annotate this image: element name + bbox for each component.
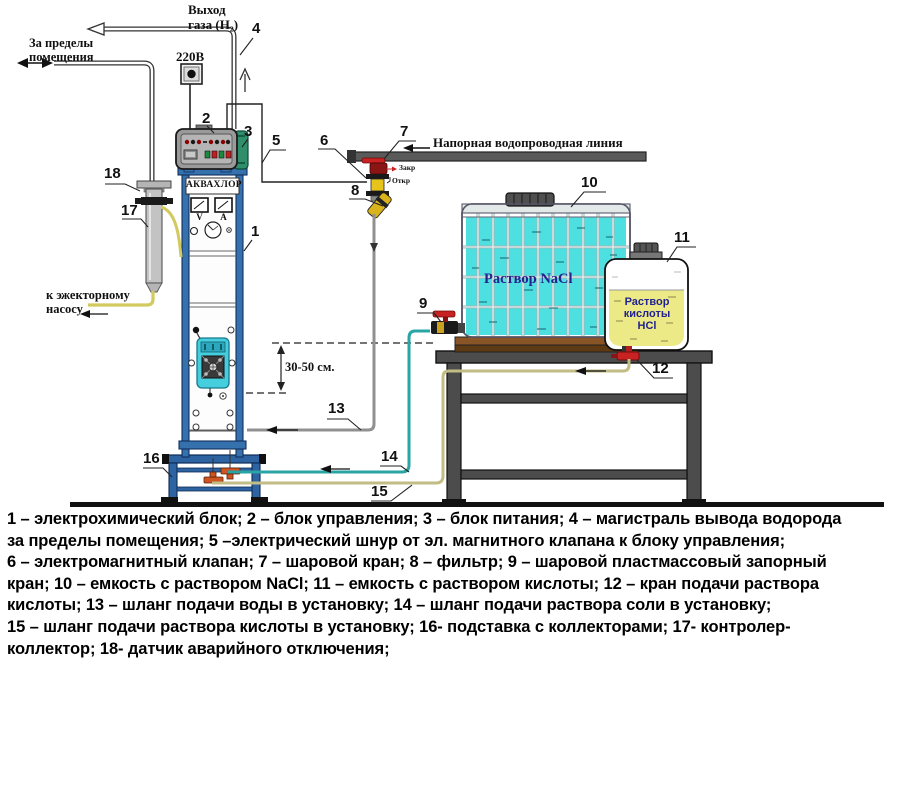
ejector-line1: к эжекторному	[46, 288, 130, 302]
outside-line1: За пределы	[29, 36, 93, 50]
collector-stand	[161, 450, 268, 505]
label-distance: 30-50 см.	[285, 360, 334, 374]
voltmeter	[191, 198, 208, 212]
acid-line2: кислоты	[624, 308, 670, 320]
safety-sensor-clamp	[135, 197, 173, 205]
callout-2: 2	[202, 111, 210, 126]
ammeter	[215, 198, 232, 212]
label-outside-room: За пределы помещения	[29, 36, 94, 65]
callout-3: 3	[244, 124, 252, 139]
h2-flow-arrow-icon	[88, 23, 104, 35]
outside-line2: помещения	[29, 50, 94, 64]
label-nacl-solution: Раствор NaCl	[484, 271, 573, 288]
water-flow-arrow-icon	[403, 144, 430, 152]
solenoid-body	[371, 179, 384, 191]
aquachlor-unit	[178, 168, 247, 457]
table	[436, 351, 712, 507]
callout-1: 1	[251, 224, 259, 239]
acid-hose-15	[212, 359, 629, 483]
cable-terminal	[193, 327, 199, 333]
callout-14: 14	[381, 449, 398, 464]
legend-line-6: 15 – шланг подачи раствора кислоты в уст…	[7, 617, 906, 639]
callout-9: 9	[419, 296, 427, 311]
valve-assembly	[362, 158, 397, 220]
ball-valve-body	[370, 163, 387, 174]
gauge-icon	[205, 222, 221, 238]
gas-outlet-line1: Выход	[188, 2, 226, 17]
callout-17: 17	[121, 203, 138, 218]
legend-line-2: за пределы помещения; 5 –электрический ш…	[7, 531, 906, 553]
label-valve-open: Откр	[392, 177, 410, 186]
safety-sensor-flange	[137, 181, 171, 188]
label-aquachlor: АКВАХЛОР	[186, 180, 239, 191]
pump-module	[197, 338, 229, 388]
plastic-ball-valve-9	[431, 311, 465, 334]
down-arrow-icon	[370, 243, 378, 252]
water-hose-13	[247, 214, 378, 434]
label-water-line: Напорная водопроводная линия	[433, 136, 623, 151]
callout-5: 5	[272, 133, 280, 148]
indicator-lamp	[191, 228, 198, 235]
schematic-drawing	[0, 0, 908, 510]
label-acid-solution: Раствор кислоты HCl	[618, 296, 676, 332]
callout-13: 13	[328, 401, 345, 416]
label-ejector-pump: к эжекторному насосу	[46, 288, 130, 317]
h2-up-arrow-icon	[240, 69, 250, 92]
callout-15: 15	[371, 484, 388, 499]
label-voltmeter: V	[191, 212, 208, 222]
acid-line1: Раствор	[625, 296, 670, 308]
control-unit	[176, 125, 248, 172]
acid-line3: HCl	[638, 320, 657, 332]
label-220v: 220В	[176, 50, 204, 65]
legend: 1 – электрохимический блок; 2 – блок упр…	[7, 509, 906, 660]
callout-18: 18	[104, 166, 121, 181]
legend-line-1: 1 – электрохимический блок; 2 – блок упр…	[7, 509, 906, 531]
legend-line-7: коллектор; 18- датчик аварийного отключе…	[7, 639, 906, 661]
left-arrow-icon	[266, 426, 277, 434]
legend-line-5: кислоты; 13 – шланг подачи воды в устано…	[7, 595, 906, 617]
outside-vent-pipe	[17, 58, 152, 182]
power-outlet	[181, 64, 202, 84]
callout-16: 16	[143, 451, 160, 466]
gas-outlet-line2: газа (H₂)	[188, 17, 238, 32]
callout-10: 10	[581, 175, 598, 190]
label-valve-closed: Закр	[399, 164, 415, 173]
label-gas-outlet: Выход газа (H₂)	[188, 3, 238, 33]
ball-valve-handle	[362, 158, 385, 163]
callout-8: 8	[351, 183, 359, 198]
callout-12: 12	[652, 361, 669, 376]
h2-outlet-pipe	[88, 23, 234, 129]
callout-7: 7	[400, 124, 408, 139]
callout-4: 4	[252, 21, 260, 36]
callout-11: 11	[674, 230, 690, 245]
floor-line	[70, 502, 884, 507]
installation-diagram: Выход газа (H₂) За пределы помещения 220…	[0, 0, 908, 800]
controller-collector	[135, 181, 173, 292]
legend-line-4: кран; 10 – емкость с раствором NaCl; 11 …	[7, 574, 906, 596]
collector-tube	[161, 207, 181, 257]
callout-6: 6	[320, 133, 328, 148]
ejector-line2: насосу	[46, 302, 83, 316]
legend-line-3: 6 – электромагнитный клапан; 7 – шаровой…	[7, 552, 906, 574]
label-ammeter: A	[215, 212, 232, 222]
